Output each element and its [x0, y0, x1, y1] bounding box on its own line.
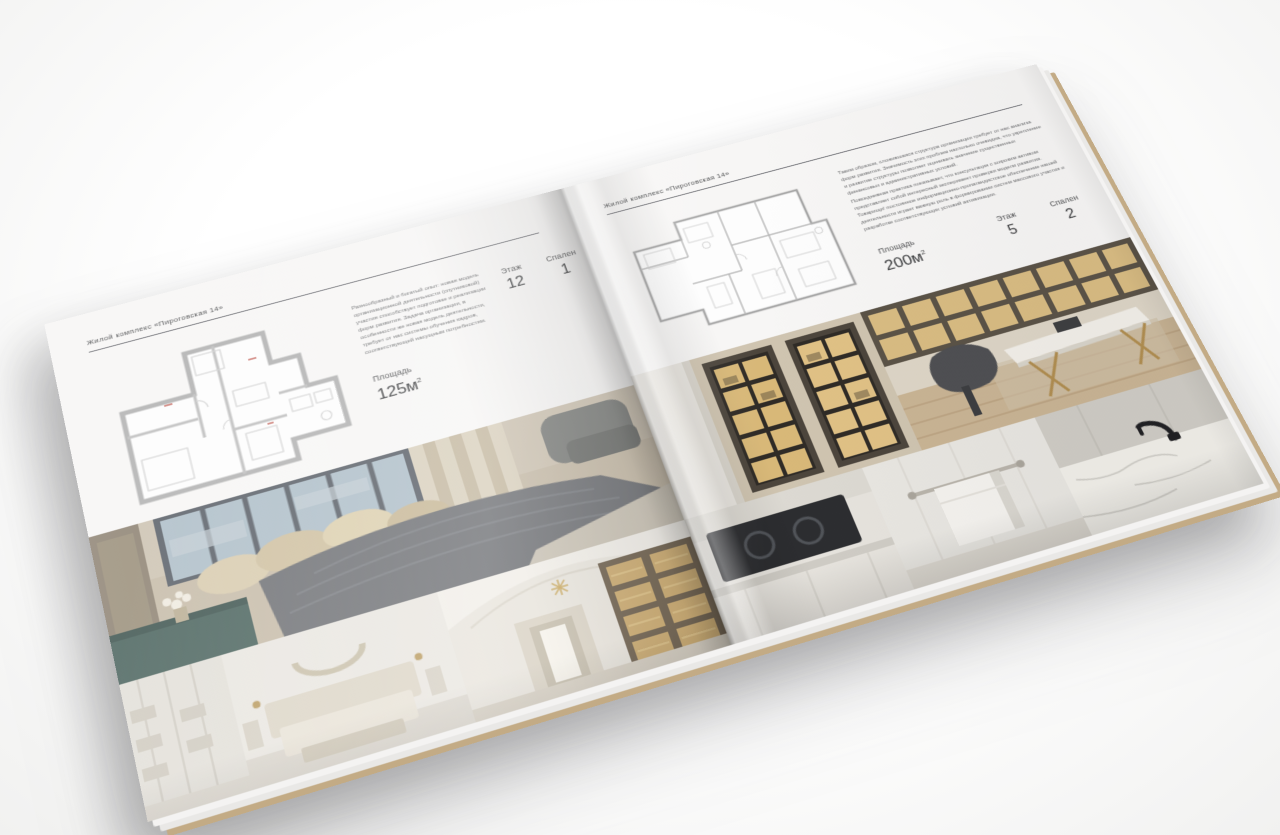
stat-floor-left: Этаж 12: [488, 259, 541, 296]
stat-area-right: Площадь 200м2: [877, 232, 945, 274]
brochure-spread: Жилой комплекс «Пироговская 14»: [44, 64, 1263, 822]
brochure-mockup: Жилой комплекс «Пироговская 14»: [110, 137, 1170, 667]
stat-area-left: Площадь 125м2: [372, 358, 441, 403]
stat-bedrooms-right: Спален 2: [1041, 191, 1095, 227]
screenshot-canvas: Жилой комплекс «Пироговская 14»: [0, 0, 1280, 835]
area-sup: 2: [416, 375, 423, 384]
stat-floor-right: Этаж 5: [983, 207, 1037, 243]
stat-bedrooms-left: Спален 1: [538, 245, 591, 282]
open-brochure: Жилой комплекс «Пироговская 14»: [44, 64, 1263, 822]
left-description: Разнообразный и богатый опыт: новая моде…: [351, 269, 503, 357]
